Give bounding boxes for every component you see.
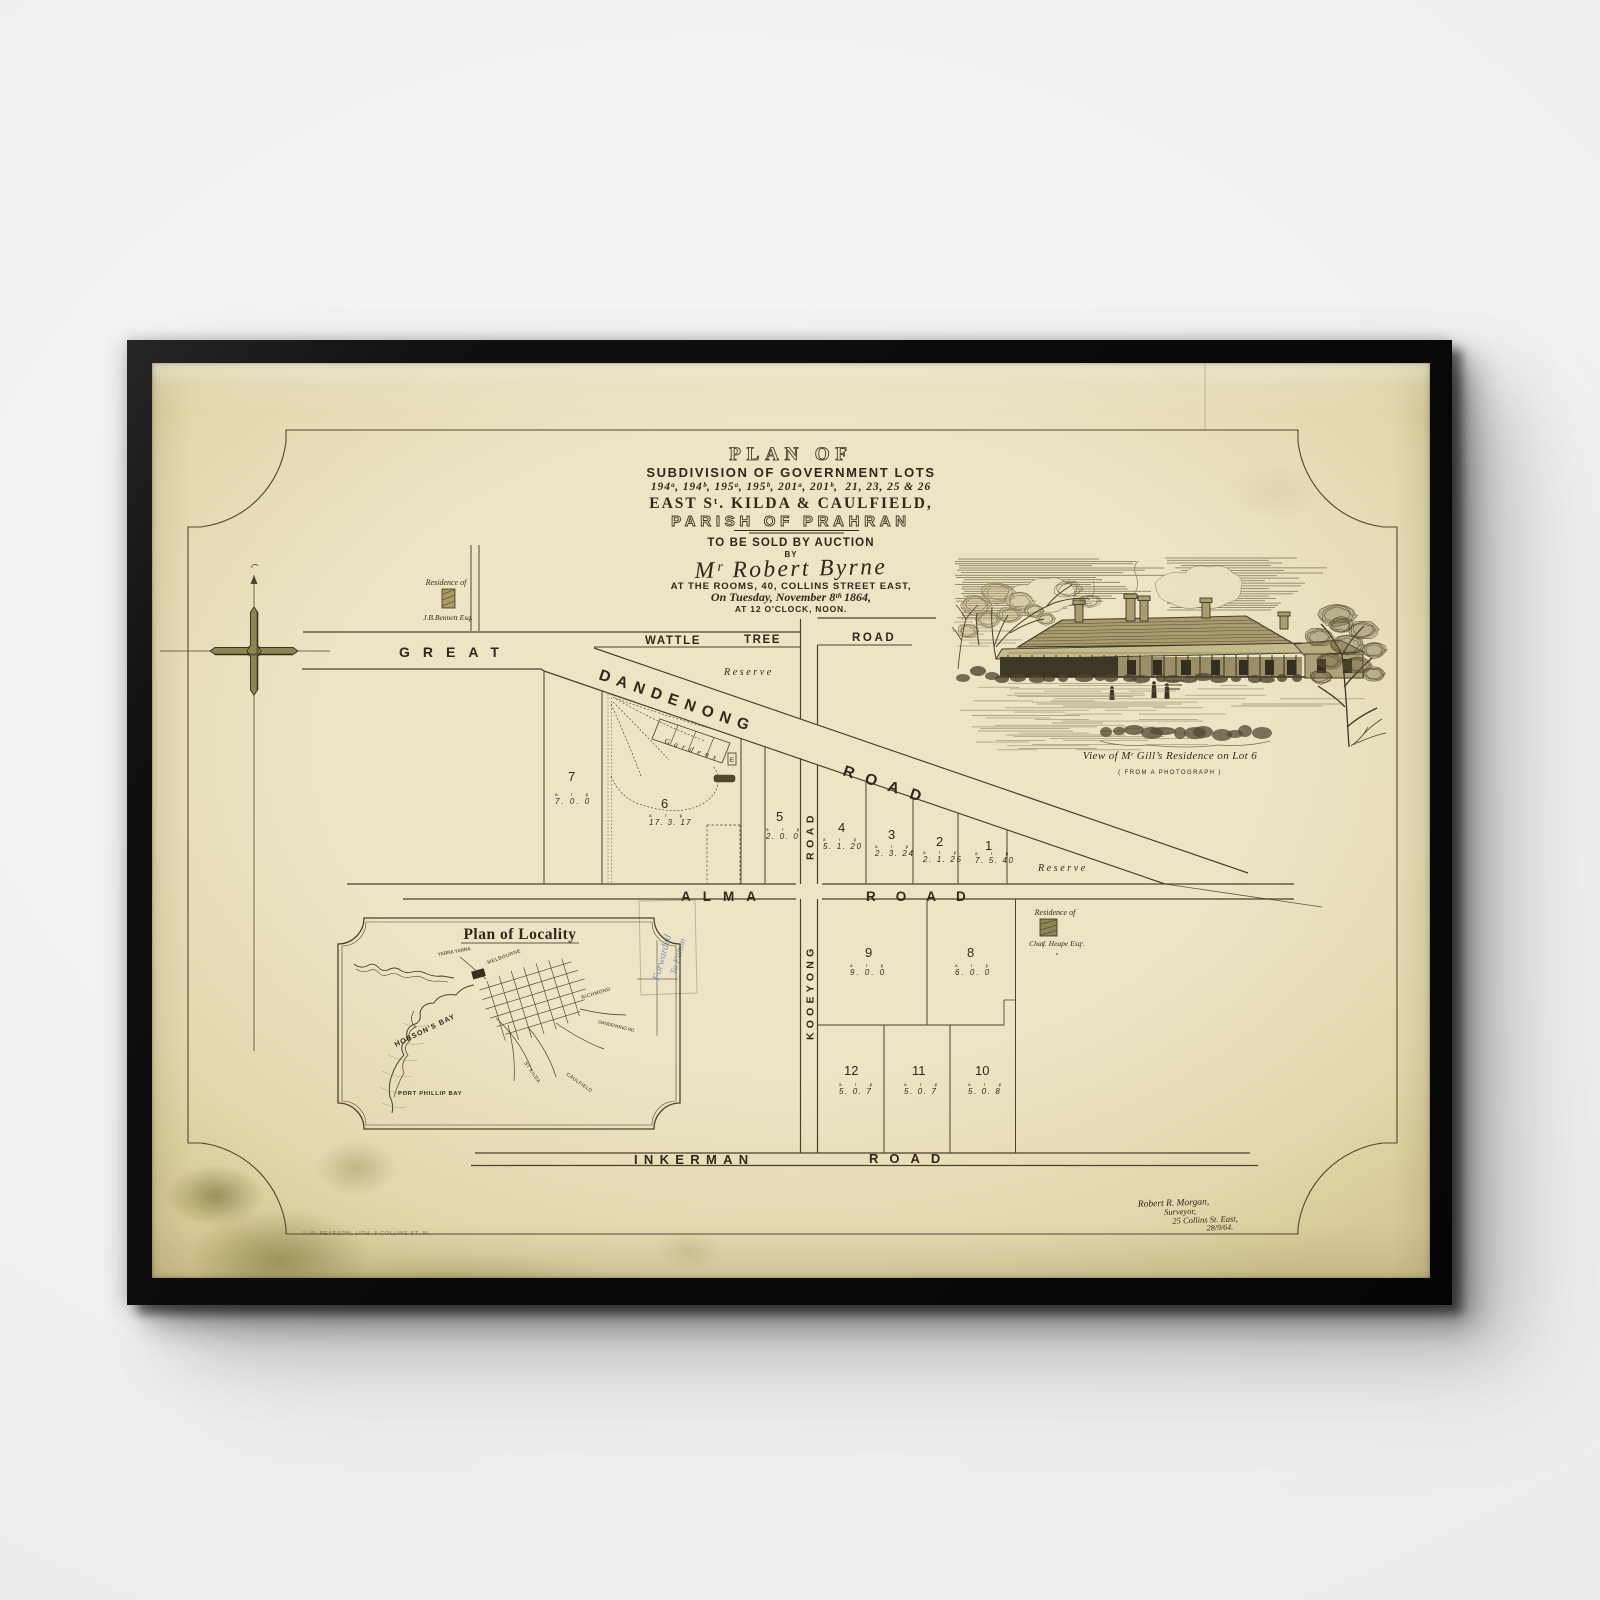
svg-text:Chaʧ. Heape Esqʳ.: Chaʧ. Heape Esqʳ. bbox=[1029, 939, 1085, 948]
svg-text:KOOEYONG: KOOEYONG bbox=[805, 945, 817, 1040]
svg-text:7. 0. 0: 7. 0. 0 bbox=[555, 797, 591, 806]
svg-text:5. 0. 7: 5. 0. 7 bbox=[904, 1087, 937, 1096]
svg-text:YARRA YARRA: YARRA YARRA bbox=[437, 946, 472, 958]
svg-text:2. 1. 25: 2. 1. 25 bbox=[922, 855, 963, 864]
svg-text:Reserve: Reserve bbox=[723, 667, 774, 678]
svg-text:TO BE SOLD BY AUCTION: TO BE SOLD BY AUCTION bbox=[707, 537, 874, 549]
svg-text:PARISH OF PRAHRAN: PARISH OF PRAHRAN bbox=[671, 513, 911, 530]
svg-text:EAST Sᵗ. KILDA & CAULFIELD,: EAST Sᵗ. KILDA & CAULFIELD, bbox=[649, 495, 933, 512]
svg-text:GREAT: GREAT bbox=[399, 644, 512, 660]
svg-text:AT 12 O'CLOCK, NOON.: AT 12 O'CLOCK, NOON. bbox=[735, 604, 847, 614]
svg-text:HOBSON'S BAY: HOBSON'S BAY bbox=[393, 1012, 457, 1049]
svg-text:6. 0. 0: 6. 0. 0 bbox=[955, 968, 991, 977]
svg-text:ROAD: ROAD bbox=[869, 1151, 951, 1166]
svg-text:17. 3. 17: 17. 3. 17 bbox=[649, 818, 692, 827]
svg-text:194ᵃ, 194ᵇ, 195ᵃ, 195ᵇ, 201ᵃ,: 194ᵃ, 194ᵇ, 195ᵃ, 195ᵇ, 201ᵃ, 201ᵇ, 21, … bbox=[651, 481, 931, 493]
svg-text:2: 2 bbox=[936, 834, 943, 849]
svg-text:J.B.Bennett Esq.: J.B.Bennett Esq. bbox=[423, 613, 473, 622]
svg-text:10: 10 bbox=[975, 1063, 989, 1078]
svg-text:Mʳ Robert Byrne: Mʳ Robert Byrne bbox=[693, 554, 887, 584]
svg-text:5. 0. 7: 5. 0. 7 bbox=[839, 1087, 872, 1096]
svg-text:4: 4 bbox=[838, 820, 845, 835]
svg-text:J. W. PEARSON, LITH. 5 COLLINS: J. W. PEARSON, LITH. 5 COLLINS ST. W. bbox=[302, 1231, 430, 1237]
svg-text:G a r d e n s: G a r d e n s bbox=[663, 736, 718, 762]
svg-text:Forwarded: Forwarded bbox=[651, 933, 674, 983]
svg-text:TREE: TREE bbox=[744, 634, 781, 646]
svg-text:ROAD: ROAD bbox=[841, 763, 935, 810]
svg-text:( FROM A PHOTOGRAPH ): ( FROM A PHOTOGRAPH ) bbox=[1118, 770, 1222, 776]
svg-text:11: 11 bbox=[912, 1063, 926, 1078]
svg-text:CAULFIELD: CAULFIELD bbox=[565, 1072, 593, 1094]
svg-text:PORT PHILLIP BAY: PORT PHILLIP BAY bbox=[398, 1091, 462, 1097]
svg-text:ALMA: ALMA bbox=[681, 889, 768, 904]
svg-text:9. 0. 0: 9. 0. 0 bbox=[850, 968, 886, 977]
svg-text:7. 5. 40: 7. 5. 40 bbox=[975, 856, 1015, 865]
svg-text:6: 6 bbox=[661, 796, 668, 811]
svg-text:DANDENONG RD: DANDENONG RD bbox=[598, 1019, 636, 1033]
svg-text:RICHMOND: RICHMOND bbox=[581, 986, 612, 1001]
svg-text:View of Mʳ Gill’s Residence on: View of Mʳ Gill’s Residence on Lot 6 bbox=[1083, 750, 1257, 762]
svg-text:Plan of Locality: Plan of Locality bbox=[463, 926, 576, 943]
svg-text:Residence of: Residence of bbox=[1034, 908, 1077, 917]
svg-text:MELBOURNE: MELBOURNE bbox=[487, 948, 523, 966]
svg-text:Residence of: Residence of bbox=[425, 578, 468, 587]
svg-text:5. 1. 20: 5. 1. 20 bbox=[823, 842, 863, 851]
svg-text:Reserve: Reserve bbox=[1037, 863, 1088, 874]
svg-text:2. 0. 0: 2. 0. 0 bbox=[765, 832, 799, 841]
svg-text:SUBDIVISION OF GOVERNMENT LOTS: SUBDIVISION OF GOVERNMENT LOTS bbox=[646, 465, 935, 480]
svg-text:12: 12 bbox=[844, 1063, 858, 1078]
svg-text:ROAD: ROAD bbox=[852, 632, 896, 644]
svg-text:ROAD: ROAD bbox=[805, 811, 817, 860]
svg-text:E: E bbox=[730, 757, 735, 764]
svg-text:5. 0. 8: 5. 0. 8 bbox=[968, 1087, 1001, 1096]
svg-text:5: 5 bbox=[776, 809, 783, 824]
svg-text:2. 3. 24: 2. 3. 24 bbox=[874, 849, 915, 858]
svg-text:WATTLE: WATTLE bbox=[645, 635, 701, 647]
svg-text:PLAN OF: PLAN OF bbox=[729, 444, 852, 465]
svg-text:On Tuesday, November 8ᵗʱ 1864,: On Tuesday, November 8ᵗʱ 1864, bbox=[711, 590, 871, 604]
svg-text:28/9/64.: 28/9/64. bbox=[1207, 1223, 1234, 1233]
svg-text:7: 7 bbox=[568, 769, 575, 784]
svg-text:ST KILDA: ST KILDA bbox=[522, 1061, 541, 1085]
svg-text:ROAD: ROAD bbox=[866, 889, 986, 904]
svg-text:8: 8 bbox=[967, 945, 974, 960]
svg-text:3: 3 bbox=[888, 827, 895, 842]
svg-text:9: 9 bbox=[865, 945, 872, 960]
svg-text:INKERMAN: INKERMAN bbox=[634, 1152, 754, 1167]
